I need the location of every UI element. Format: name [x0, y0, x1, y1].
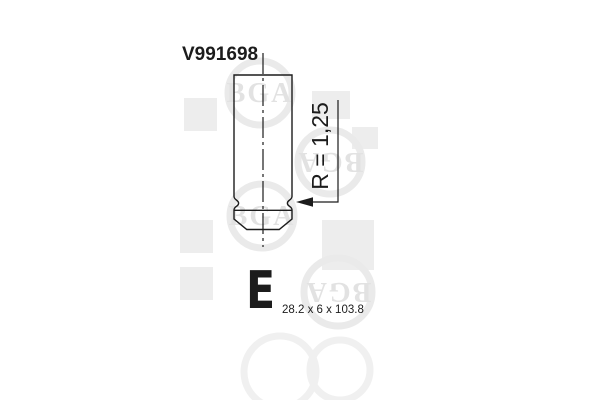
watermark-square	[180, 267, 213, 300]
bga-logo-watermark: BGA	[229, 184, 296, 248]
valve-type-marker: E	[246, 261, 275, 321]
bga-logo-watermark: BGA	[227, 61, 294, 125]
valve-technical-drawing: BGA BGA BGA BGA	[0, 0, 600, 400]
radius-label: R = 1,25	[307, 102, 333, 190]
catalog-image: BGA BGA BGA BGA	[0, 0, 600, 400]
watermark: BGA BGA BGA BGA	[180, 61, 378, 400]
watermark-brand-text: BGA	[229, 201, 296, 232]
part-number: V991698	[182, 44, 258, 65]
watermark-brand-text: BGA	[305, 276, 372, 307]
watermark-square	[184, 98, 217, 131]
dimensions-label: 28.2 x 6 x 103.8	[282, 304, 364, 316]
watermark-square	[180, 220, 213, 253]
radius-arrow-icon	[296, 197, 313, 207]
watermark-brand-text: BGA	[227, 78, 294, 109]
watermark-ring	[244, 336, 316, 400]
